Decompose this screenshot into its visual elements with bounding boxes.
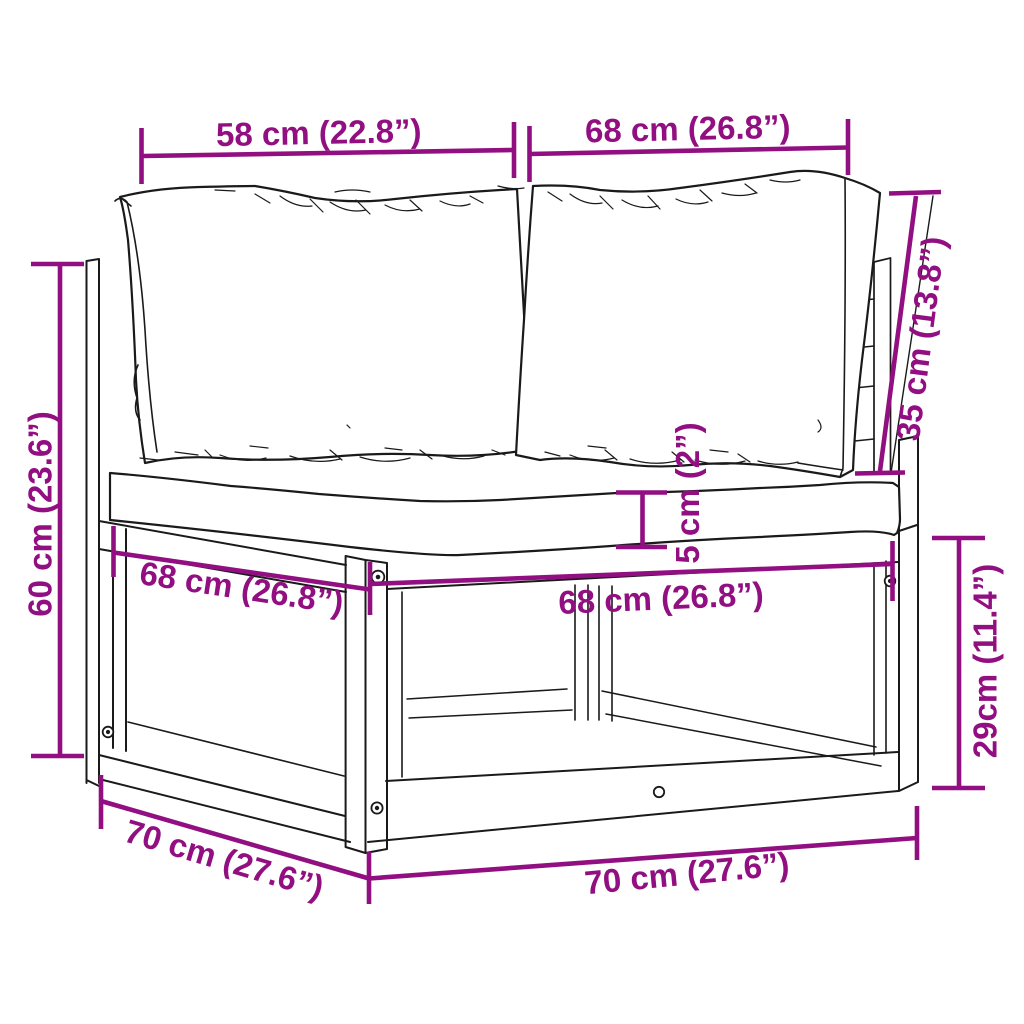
svg-text:68 cm (26.8”): 68 cm (26.8”) [585, 108, 791, 150]
svg-text:58 cm (22.8”): 58 cm (22.8”) [216, 112, 422, 153]
svg-text:60 cm (23.6”): 60 cm (23.6”) [22, 411, 59, 616]
svg-text:5 cm (2”): 5 cm (2”) [669, 422, 706, 563]
svg-text:29cm (11.4”): 29cm (11.4”) [967, 564, 1004, 758]
